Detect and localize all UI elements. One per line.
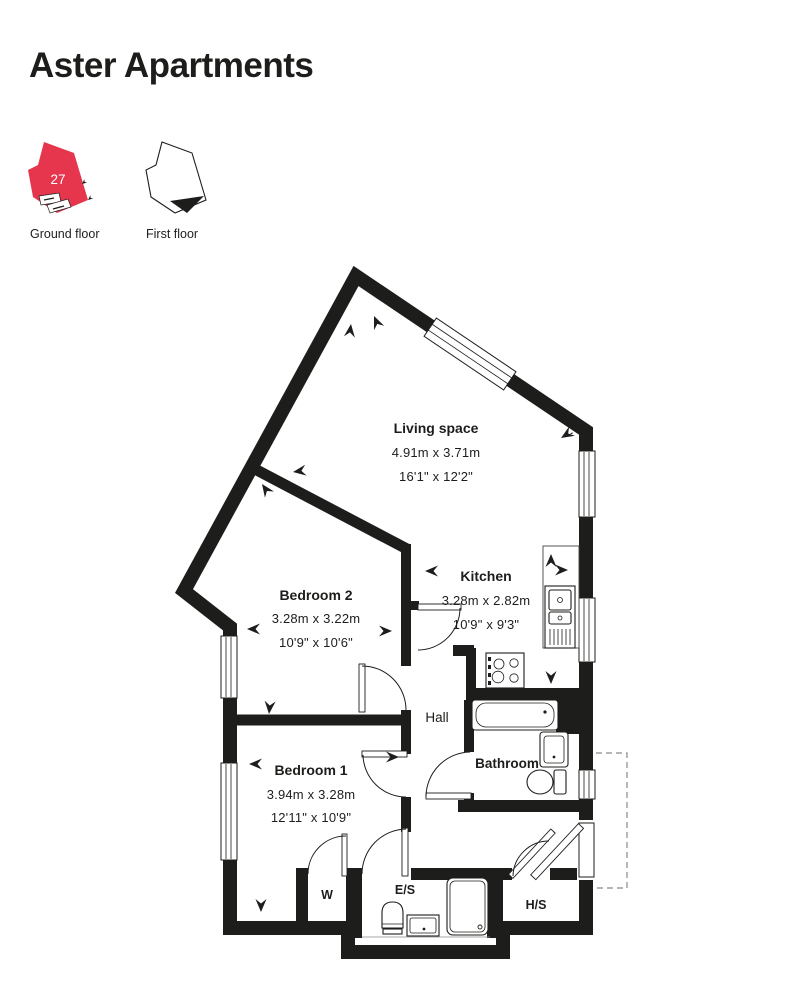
entry-door-leaf xyxy=(509,829,556,878)
room-name-kitchen: Kitchen xyxy=(460,568,511,584)
room-name-bathroom: Bathroom xyxy=(475,756,539,771)
basin-icon xyxy=(407,915,439,936)
wall-wardrobe-ensuite xyxy=(346,868,362,938)
toilet-icon xyxy=(527,770,566,794)
room-name-living: Living space xyxy=(394,420,479,436)
window-icon xyxy=(579,770,595,799)
door-bedroom2 xyxy=(359,664,406,712)
dimension-arrow xyxy=(344,323,357,337)
room-dim-bedroom2-i: 10'9" x 10'6" xyxy=(279,635,353,650)
door-wardrobe xyxy=(308,834,347,876)
first-floor-icon[interactable] xyxy=(146,142,206,213)
wall-kitchen-stub xyxy=(404,601,419,610)
room-dim-kitchen-m: 3.28m x 2.82m xyxy=(442,593,531,608)
ensuite-fixtures xyxy=(362,878,490,937)
basin-icon xyxy=(540,732,568,767)
room-dim-bedroom1-m: 3.94m x 3.28m xyxy=(267,787,356,802)
door-bathroom xyxy=(426,752,471,799)
bathroom-fixtures xyxy=(472,700,568,794)
hob-icon xyxy=(486,653,524,688)
page-title: Aster Apartments xyxy=(29,46,313,85)
ground-floor-arrow xyxy=(87,195,94,202)
window-icon xyxy=(424,318,516,390)
floor-plan-canvas: Aster Apartments 27 Ground floor First f… xyxy=(0,0,800,993)
dimension-arrow xyxy=(425,566,438,577)
window-icon xyxy=(579,451,595,517)
wall-ensuite-storage xyxy=(487,868,503,938)
room-name-ensuite: E/S xyxy=(395,883,415,897)
unit-number: 27 xyxy=(50,172,65,187)
room-name-storage: H/S xyxy=(526,898,547,912)
room-dim-living-m: 4.91m x 3.71m xyxy=(392,445,481,460)
wall-bedroom1-wardrobe xyxy=(296,868,308,926)
wall-bathroom-corner xyxy=(556,688,586,734)
room-name-hall: Hall xyxy=(425,710,448,725)
dimension-arrow xyxy=(379,626,392,637)
ground-floor-label: Ground floor xyxy=(30,227,99,241)
ground-floor-icon[interactable]: 27 xyxy=(28,142,93,213)
toilet-icon xyxy=(382,902,403,934)
wall-kitchen-hall xyxy=(466,648,476,692)
dimension-arrow xyxy=(292,465,306,478)
first-floor-label: First floor xyxy=(146,227,198,241)
window-icon xyxy=(221,636,237,698)
room-dim-bedroom1-i: 12'11" x 10'9" xyxy=(271,810,352,825)
window-icon xyxy=(221,763,237,860)
dashed-boundary xyxy=(596,753,627,888)
dimension-arrow xyxy=(256,899,267,912)
kitchen-sink-icon xyxy=(545,586,575,648)
room-dim-bedroom2-m: 3.28m x 3.22m xyxy=(272,611,361,626)
dimension-arrow xyxy=(369,314,384,330)
dimension-arrow xyxy=(249,759,262,770)
shower-icon xyxy=(447,878,488,935)
room-name-bedroom2: Bedroom 2 xyxy=(279,587,352,603)
floorplan-page: Aster Apartments 27 Ground floor First f… xyxy=(0,0,800,993)
door-bedroom1 xyxy=(362,751,407,797)
outer-wall xyxy=(184,276,586,952)
wall-living-bedroom2 xyxy=(251,467,407,549)
dimension-arrow xyxy=(264,701,276,715)
room-name-wardrobe: W xyxy=(321,888,333,902)
room-name-bedroom1: Bedroom 1 xyxy=(274,762,347,778)
door-ensuite xyxy=(362,828,408,876)
wall-bathroom-bottom xyxy=(458,800,588,812)
dimension-arrow xyxy=(247,624,260,635)
room-dim-living-i: 16'1" x 12'2" xyxy=(399,469,473,484)
room-dim-kitchen-i: 10'9" x 9'3" xyxy=(453,617,520,632)
dimension-arrow xyxy=(546,671,557,684)
window-icon xyxy=(579,598,595,662)
bathtub-icon xyxy=(472,700,558,730)
